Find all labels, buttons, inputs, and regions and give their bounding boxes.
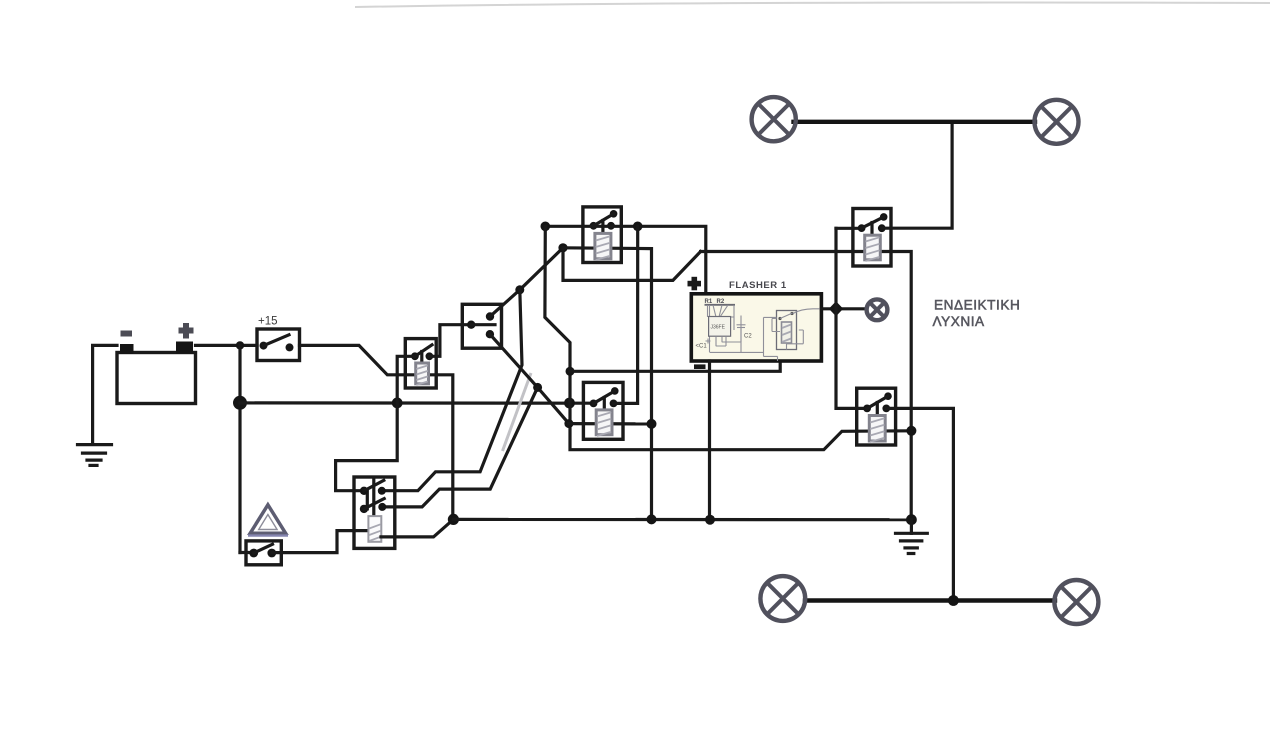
svg-text:J36FE: J36FE [711,325,726,331]
svg-text:C2: C2 [744,334,752,340]
svg-text:+15: +15 [258,316,278,328]
svg-text:FLASHER 1: FLASHER 1 [729,280,787,291]
svg-text:<C1: <C1 [696,344,708,350]
svg-text:ΕΝΔΕΙΚΤΙΚΗ: ΕΝΔΕΙΚΤΙΚΗ [934,298,1020,313]
svg-text:ΛΥΧΝΙΑ: ΛΥΧΝΙΑ [933,314,986,329]
